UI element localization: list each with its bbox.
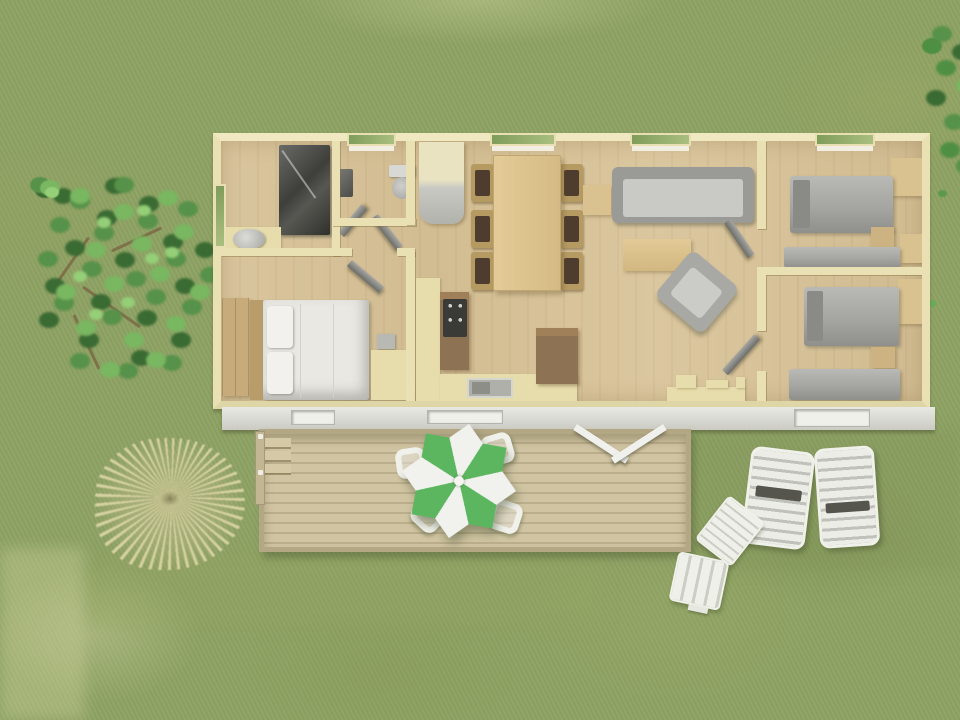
window — [347, 133, 396, 146]
window — [490, 133, 556, 146]
window-left-wall — [214, 184, 226, 248]
tree-branch — [82, 286, 141, 329]
window-sill — [492, 146, 554, 151]
window-sill — [817, 146, 873, 151]
tree-branch — [111, 227, 162, 253]
sun-lounger — [814, 445, 881, 549]
deck-steps-rail — [255, 431, 265, 505]
house-outer-walls — [213, 133, 930, 409]
garden-stool — [668, 551, 729, 611]
window-sill — [349, 146, 394, 151]
window — [815, 133, 875, 146]
aerial-render — [0, 0, 960, 720]
deck-step-post — [258, 470, 263, 475]
deck-step-post — [258, 434, 263, 439]
window — [630, 133, 691, 146]
tree-branch — [72, 314, 100, 370]
facade-window — [291, 410, 335, 425]
parasol — [392, 414, 526, 548]
lounger-slot — [825, 500, 870, 513]
tree-branch — [53, 237, 90, 288]
window-sill — [632, 146, 689, 151]
grass-patch-bottom-left — [0, 548, 85, 720]
tree-foliage-bright — [45, 187, 59, 198]
deck-step — [265, 438, 291, 447]
lounger-slot — [755, 485, 802, 502]
deck-step — [265, 451, 291, 460]
facade-window — [794, 409, 870, 427]
right-edge-bush — [922, 38, 942, 54]
deck-step — [265, 464, 291, 473]
tree — [15, 162, 215, 382]
